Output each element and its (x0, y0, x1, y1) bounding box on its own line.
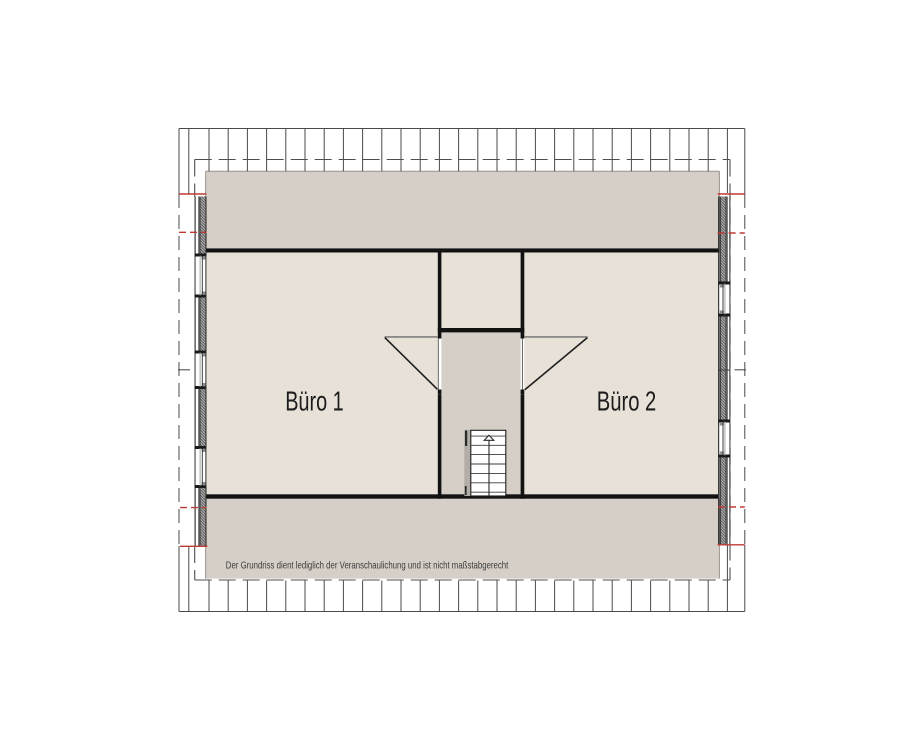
svg-text:Büro 2: Büro 2 (597, 385, 657, 416)
svg-text:Büro 1: Büro 1 (285, 385, 344, 416)
svg-text:Der Grundriss dient lediglich: Der Grundriss dient lediglich der Verans… (226, 561, 509, 572)
